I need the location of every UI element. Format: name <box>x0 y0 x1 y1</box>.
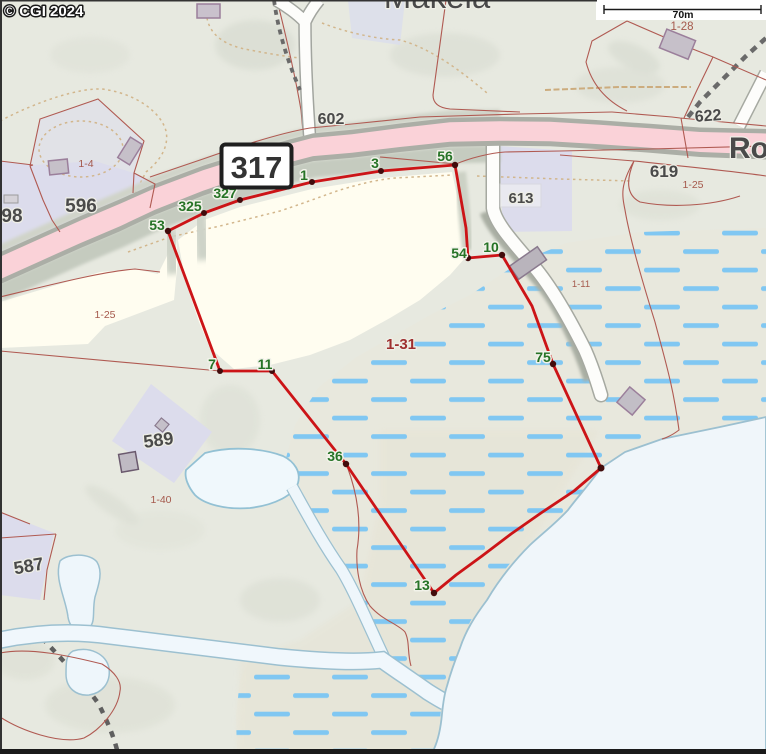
svg-text:Mäkelä: Mäkelä <box>384 0 491 15</box>
svg-text:1-31: 1-31 <box>386 336 416 353</box>
svg-text:1-28: 1-28 <box>670 21 693 33</box>
svg-text:98: 98 <box>1 206 22 227</box>
svg-text:1-11: 1-11 <box>572 279 590 290</box>
svg-text:36: 36 <box>327 448 343 464</box>
svg-text:10: 10 <box>483 239 499 255</box>
svg-text:596: 596 <box>65 196 97 217</box>
svg-text:3: 3 <box>371 155 379 171</box>
svg-text:1-25: 1-25 <box>94 309 115 321</box>
svg-text:619: 619 <box>650 162 678 181</box>
svg-text:70m: 70m <box>672 9 693 21</box>
svg-text:317: 317 <box>231 150 283 185</box>
svg-text:325: 325 <box>178 198 202 214</box>
svg-text:53: 53 <box>149 217 165 233</box>
svg-text:602: 602 <box>318 111 345 128</box>
svg-text:© CGI 2024: © CGI 2024 <box>4 3 84 20</box>
svg-text:1: 1 <box>300 167 308 183</box>
svg-text:Ro: Ro <box>729 132 766 165</box>
svg-text:11: 11 <box>258 356 273 372</box>
svg-text:7: 7 <box>208 356 216 372</box>
svg-text:13: 13 <box>414 577 430 593</box>
svg-text:54: 54 <box>451 245 467 261</box>
svg-text:75: 75 <box>535 349 551 365</box>
svg-text:56: 56 <box>437 148 453 164</box>
svg-text:622: 622 <box>694 107 722 126</box>
svg-text:1-40: 1-40 <box>150 494 171 506</box>
svg-text:1-4: 1-4 <box>78 158 93 170</box>
svg-text:613: 613 <box>508 190 533 207</box>
svg-text:1-25: 1-25 <box>682 179 703 191</box>
svg-text:589: 589 <box>142 428 175 452</box>
